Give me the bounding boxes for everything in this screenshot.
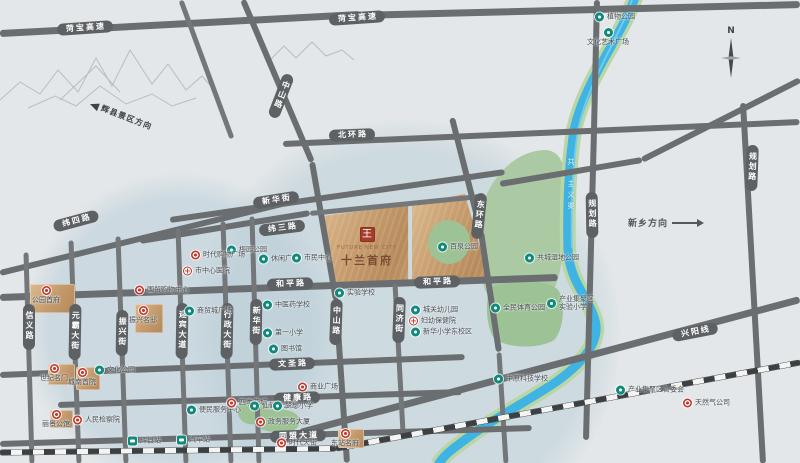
commerce-poi-icon (298, 383, 307, 392)
map-canvas: 共产主义渠 王 FUTURE NEW CITY 十兰首府 辉县景区方向 新乡方向… (0, 0, 800, 463)
project-poi-icon (50, 364, 59, 373)
poi-label: 市民中心 (304, 254, 332, 262)
road-label: 同济街 (392, 297, 406, 343)
poi-marker: 实验学校 (335, 289, 375, 298)
train-station-icon (128, 437, 137, 446)
poi-label: 文化艺术广场 (587, 38, 629, 46)
park-poi-icon (438, 243, 447, 252)
poi-marker: 百泉公园 (438, 243, 478, 252)
park-poi-icon (185, 307, 194, 316)
poi-label: 实验学校 (347, 289, 375, 297)
park-poi-icon (187, 406, 196, 415)
project-poi-icon (139, 306, 148, 315)
poi-marker: 政务服务大厦 (256, 418, 310, 427)
commerce-poi-icon (683, 399, 692, 408)
poi-label: 中医药学校 (275, 301, 310, 309)
park-poi-icon (292, 254, 301, 263)
poi-label: 商业广场 (310, 383, 338, 391)
park-poi-icon (494, 375, 503, 384)
project-logo: 王 FUTURE NEW CITY 十兰首府 (327, 227, 407, 268)
road-label: 规划路 (586, 192, 599, 238)
poi-label: 政务服务大厦 (268, 418, 310, 426)
park-poi-icon (595, 13, 604, 22)
poi-label: 共城湿地公园 (537, 254, 579, 262)
hospital-cross-icon (183, 267, 192, 276)
commerce-poi-icon (227, 399, 236, 408)
compass: N (716, 26, 746, 86)
arrow-left-icon (89, 100, 100, 111)
poi-label: 商贸城广场 (197, 307, 232, 315)
poi-label: 第一小学 (275, 329, 303, 337)
park-poi-icon (259, 255, 268, 264)
poi-marker: 天然气公司 (683, 399, 730, 408)
park-poi-icon (269, 345, 278, 354)
poi-marker: 世纪名门 (40, 364, 68, 382)
park-poi-icon (547, 299, 556, 308)
poi-label: 城南首院 (68, 378, 96, 386)
poi-marker: 图书馆 (269, 345, 302, 354)
project-name-cn: 十兰首府 (327, 252, 407, 268)
poi-label: 时代购物广场 (203, 251, 245, 259)
poi-label: 新华小学东校区 (423, 328, 472, 336)
poi-label: 丽景公馆 (42, 420, 70, 428)
commerce-poi-icon (277, 439, 286, 448)
project-poi-icon (78, 368, 87, 377)
poi-label: 梦想小学 (285, 402, 313, 410)
park-poi-icon (335, 289, 344, 298)
poi-marker: 东站名府 (331, 429, 359, 447)
poi-label: 辉县站 (140, 437, 161, 445)
poi-marker: 人民检察院 (73, 416, 120, 425)
poi-marker: 商业广场 (298, 383, 338, 392)
park-poi-icon (263, 329, 272, 338)
commerce-poi-icon (191, 251, 200, 260)
poi-label: 东站名府 (331, 439, 359, 447)
compass-needle-icon (716, 36, 746, 82)
river-name-label: 共产主义渠 (566, 158, 576, 213)
project-poi-icon (341, 429, 350, 438)
poi-marker: 振兴名邸 (129, 306, 157, 324)
poi-label: 公园首府 (32, 296, 60, 304)
poi-marker: 时代天街 (277, 439, 317, 448)
project-name-en: FUTURE NEW CITY (333, 245, 401, 251)
poi-marker: 城南首院 (68, 368, 96, 386)
park-poi-icon (411, 306, 420, 315)
poi-label: 产业集聚区管委会 (628, 386, 684, 394)
poi-marker: 公园首府 (32, 286, 60, 304)
park-poi-icon (525, 254, 534, 263)
poi-marker: 国贸购物中心 (135, 286, 189, 295)
project-poi-icon (52, 410, 61, 419)
poi-label: 市中心医院 (195, 267, 230, 275)
project-poi-icon (42, 286, 51, 295)
poi-label: 振兴名邸 (129, 316, 157, 324)
project-seal-icon: 王 (360, 227, 375, 242)
road-label: 中山路 (329, 299, 343, 345)
poi-label: 天然气公司 (695, 399, 730, 407)
xinxiang-direction-arrow: 新乡方向 (628, 216, 698, 229)
park-poi-icon (263, 301, 272, 310)
poi-label: 产业集聚区实验小学 (559, 295, 594, 311)
commerce-poi-icon (73, 416, 82, 425)
poi-marker: 辉县站 (128, 437, 161, 446)
poi-marker: 丽景公馆 (42, 410, 70, 428)
park-poi-icon (95, 366, 104, 375)
park-poi-icon (273, 402, 282, 411)
poi-marker: 产业集聚区管委会 (616, 386, 684, 395)
poi-label: 妇幼保健院 (421, 317, 456, 325)
road-label: 规划路 (745, 145, 759, 191)
arrow-right-icon (672, 222, 698, 224)
poi-marker: 市民中心 (292, 254, 332, 263)
park-poi-icon (604, 28, 613, 37)
poi-marker: 共城湿地公园 (525, 254, 579, 263)
commerce-poi-icon (256, 418, 265, 427)
road-label: 元霸大街 (69, 304, 82, 360)
park-poi-icon (491, 304, 500, 313)
road-label: 北环路 (329, 128, 375, 142)
poi-marker: 文化公园 (95, 366, 135, 375)
poi-marker: 第一小学 (263, 329, 303, 338)
poi-marker: 城关幼儿园 (411, 306, 458, 315)
poi-label: 世纪名门 (40, 374, 68, 382)
poi-label: 百泉公园 (450, 243, 478, 251)
poi-marker: 中原科技学校 (494, 375, 548, 384)
poi-marker: 汽车站 (177, 436, 210, 445)
compass-north-label: N (716, 26, 746, 36)
poi-marker: 新华小学东校区 (411, 328, 472, 337)
road-label: 和平路 (267, 277, 313, 291)
hospital-cross-icon (409, 317, 418, 326)
poi-marker: 中医药学校 (263, 301, 310, 310)
poi-label: 人民检察院 (85, 416, 120, 424)
poi-label: 中原科技学校 (506, 375, 548, 383)
road-label: 和平路 (414, 275, 460, 289)
poi-label: 城关幼儿园 (423, 306, 458, 314)
poi-marker: 时代购物广场 (191, 251, 245, 260)
poi-label: 图书馆 (281, 345, 302, 353)
poi-marker: 植物公园 (595, 13, 635, 22)
poi-marker: 全民体育公园 (491, 304, 545, 313)
poi-marker: 梦想小学 (273, 402, 313, 411)
poi-marker: 文化艺术广场 (587, 28, 629, 46)
poi-marker: 妇幼保健院 (409, 317, 456, 326)
poi-label: 全民体育公园 (503, 304, 545, 312)
commerce-poi-icon (135, 286, 144, 295)
park-poi-icon (616, 386, 625, 395)
train-station-icon (177, 436, 186, 445)
poi-label: 汽车站 (189, 436, 210, 444)
poi-label: 文化公园 (107, 366, 135, 374)
poi-label: 时代天街 (289, 439, 317, 447)
park-poi-icon (411, 328, 420, 337)
poi-marker: 产业集聚区实验小学 (547, 295, 594, 311)
poi-label: 国贸购物中心 (147, 286, 189, 294)
road-label: 信义路 (23, 304, 35, 350)
poi-marker: 商贸城广场 (185, 307, 232, 316)
poi-label: 植物公园 (607, 13, 635, 21)
poi-marker: 市中心医院 (183, 267, 230, 276)
park-poi-icon (250, 402, 259, 411)
road-label: 新华街 (250, 299, 263, 345)
road-label: 文圣路 (269, 357, 315, 371)
road-label: 振兴街 (116, 310, 129, 356)
